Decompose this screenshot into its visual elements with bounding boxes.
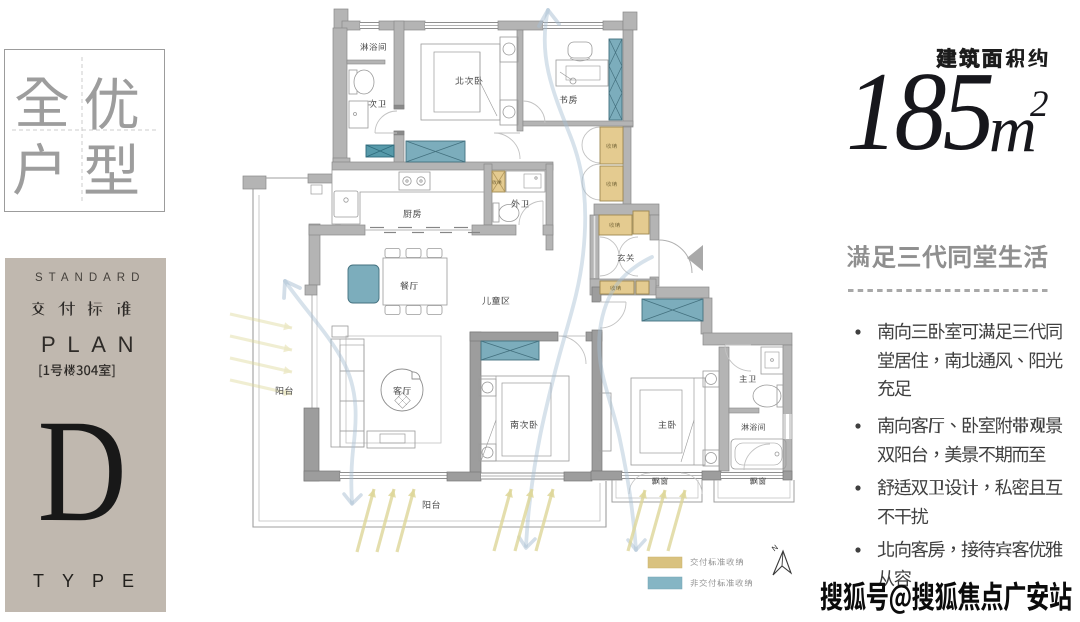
- svg-text:N: N: [770, 543, 780, 553]
